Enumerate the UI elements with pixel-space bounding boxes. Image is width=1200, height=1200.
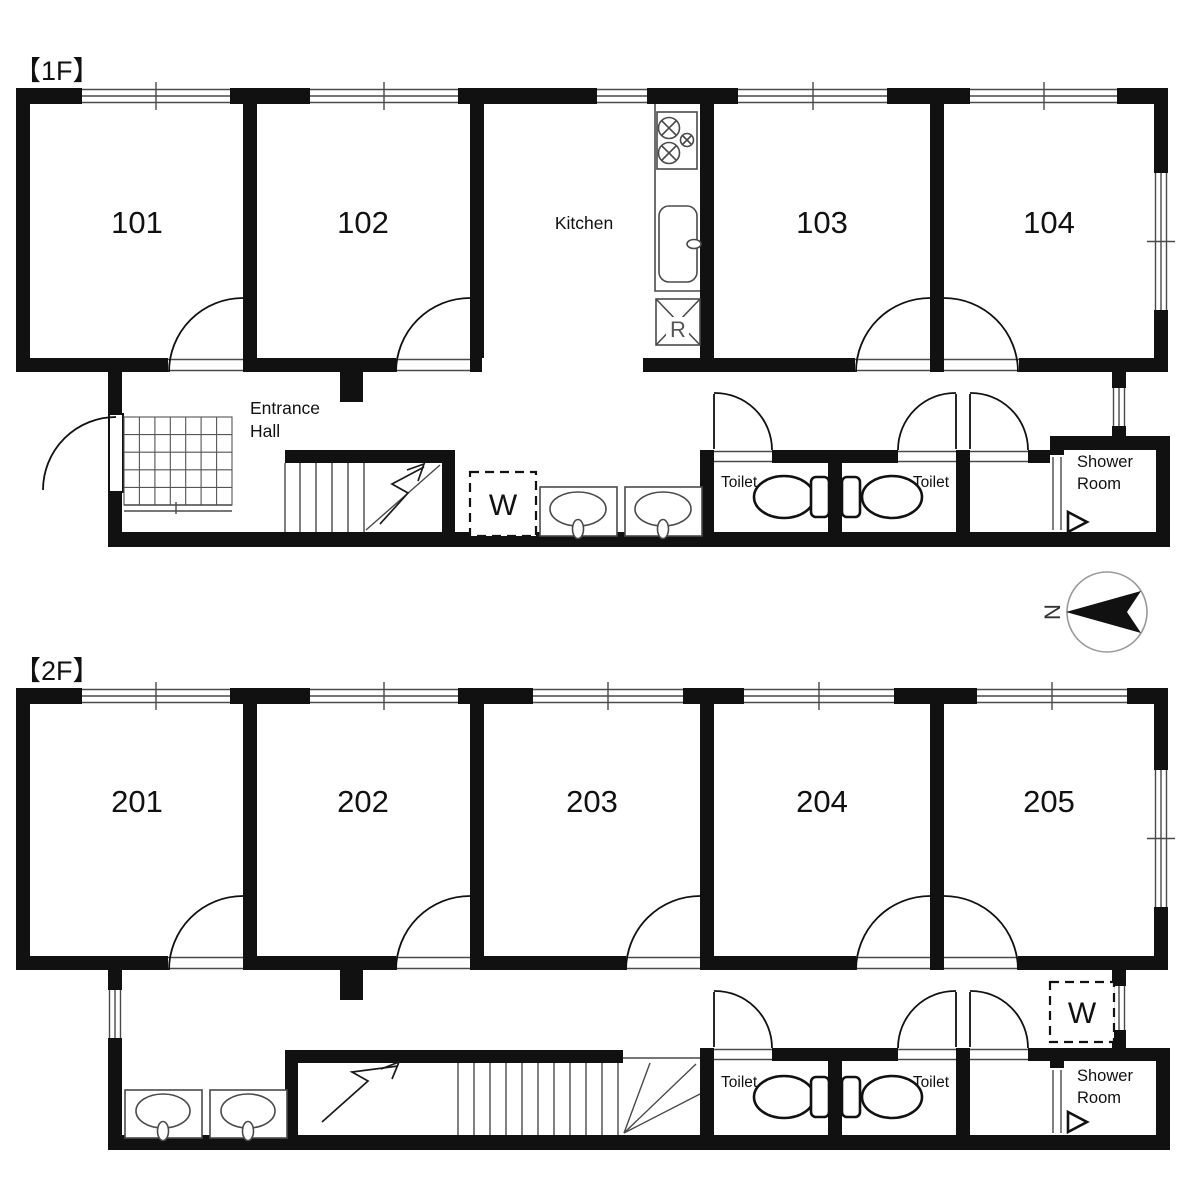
north-label: N [1040, 604, 1065, 620]
washstand-icon [625, 487, 702, 539]
door-swing-icon [944, 298, 1019, 372]
stairs-up-arrow-icon [322, 1062, 399, 1122]
shower-head-icon [1068, 512, 1087, 532]
shower-head-icon [1068, 1112, 1087, 1132]
floor-1f-label: 【1F】 [14, 56, 100, 86]
door-swing-icon [898, 991, 956, 1061]
door-swing-icon [714, 393, 772, 463]
room-103-label: 103 [796, 205, 848, 240]
washing-machine-box: W [470, 472, 536, 536]
window-icon [310, 82, 458, 110]
door-swing-icon [898, 393, 956, 463]
stairs-1f [285, 463, 440, 532]
room-205-label: 205 [1023, 784, 1075, 819]
shower-room-label: Shower [1077, 453, 1133, 471]
washstand-icon [210, 1090, 287, 1141]
shower-room-label: Room [1077, 1089, 1121, 1107]
stove-icon [657, 112, 697, 169]
window-icon [1147, 173, 1175, 310]
door-swing-icon [396, 896, 470, 970]
stairs-up-arrow-icon [380, 464, 424, 524]
compass-icon: N [1040, 572, 1147, 652]
window-icon [82, 82, 230, 110]
toilet-label: Toilet [721, 1074, 758, 1091]
window-icon [310, 682, 458, 710]
window-icon [744, 682, 894, 710]
entrance-door-icon [43, 414, 123, 492]
north-arrow-icon [1066, 591, 1141, 633]
washer-label-1f: W [489, 489, 518, 522]
window-icon [1112, 388, 1126, 426]
room-101-label: 101 [111, 205, 163, 240]
floor-2f-label: 【2F】 [14, 656, 100, 686]
door-swing-icon [168, 298, 243, 372]
window-icon [108, 990, 122, 1038]
toilet-label: Toilet [913, 1074, 950, 1091]
window-icon [82, 682, 230, 710]
shower-room-2f: Shower Room [1050, 1067, 1133, 1135]
entrance-hall-label: Hall [250, 421, 280, 441]
kitchen-label: Kitchen [555, 213, 613, 233]
refrigerator-icon: R [656, 299, 700, 345]
washing-machine-box: W [1050, 982, 1114, 1042]
stairs-2f [322, 1058, 700, 1135]
shower-room-label: Room [1077, 475, 1121, 493]
door-swing-icon [970, 991, 1028, 1061]
window-icon [970, 82, 1117, 110]
door-swing-icon [944, 896, 1018, 970]
genkan-tile-grid [124, 417, 232, 514]
door-swing-icon [396, 298, 470, 372]
window-icon [738, 82, 887, 110]
window-icon [533, 682, 683, 710]
kitchen-sink-icon [659, 206, 701, 282]
shower-room-label: Shower [1077, 1067, 1133, 1085]
floor-1f: 【1F】 [14, 56, 1175, 547]
toilet-icon: Toilet [721, 474, 829, 518]
walls-2f-rooms [16, 688, 1168, 1000]
kitchen-counter: R [655, 104, 701, 345]
door-swing-icon [168, 896, 243, 970]
room-104-label: 104 [1023, 205, 1075, 240]
room-204-label: 204 [796, 784, 848, 819]
washer-label-2f: W [1068, 997, 1097, 1030]
toilet-icon: Toilet [842, 474, 950, 518]
washstand-icon [540, 487, 617, 539]
toilet-icon: Toilet [842, 1074, 950, 1118]
walls-1f-rooms [16, 88, 1168, 402]
kitchen-passage-opening [482, 358, 643, 372]
door-swing-icon [855, 298, 930, 372]
room-102-label: 102 [337, 205, 389, 240]
door-swing-icon [970, 393, 1028, 463]
window-icon [1147, 770, 1175, 907]
washstand-icon [125, 1090, 202, 1141]
door-swing-icon [856, 896, 930, 970]
window-icon [977, 682, 1127, 710]
room-201-label: 201 [111, 784, 163, 819]
toilet-label: Toilet [721, 474, 758, 491]
shower-room-1f: Shower Room [1050, 453, 1133, 532]
room-203-label: 203 [566, 784, 618, 819]
door-swing-icon [714, 991, 772, 1061]
floor-2f: 【2F】 [14, 656, 1175, 1150]
room-202-label: 202 [337, 784, 389, 819]
toilet-icon: Toilet [721, 1074, 829, 1118]
window-icon [597, 88, 647, 104]
floor-plan-canvas: 【1F】 [0, 0, 1200, 1200]
door-swing-icon [626, 896, 700, 970]
entrance-hall-label: Entrance [250, 398, 320, 418]
fridge-label: R [670, 317, 686, 342]
toilet-label: Toilet [913, 474, 950, 491]
